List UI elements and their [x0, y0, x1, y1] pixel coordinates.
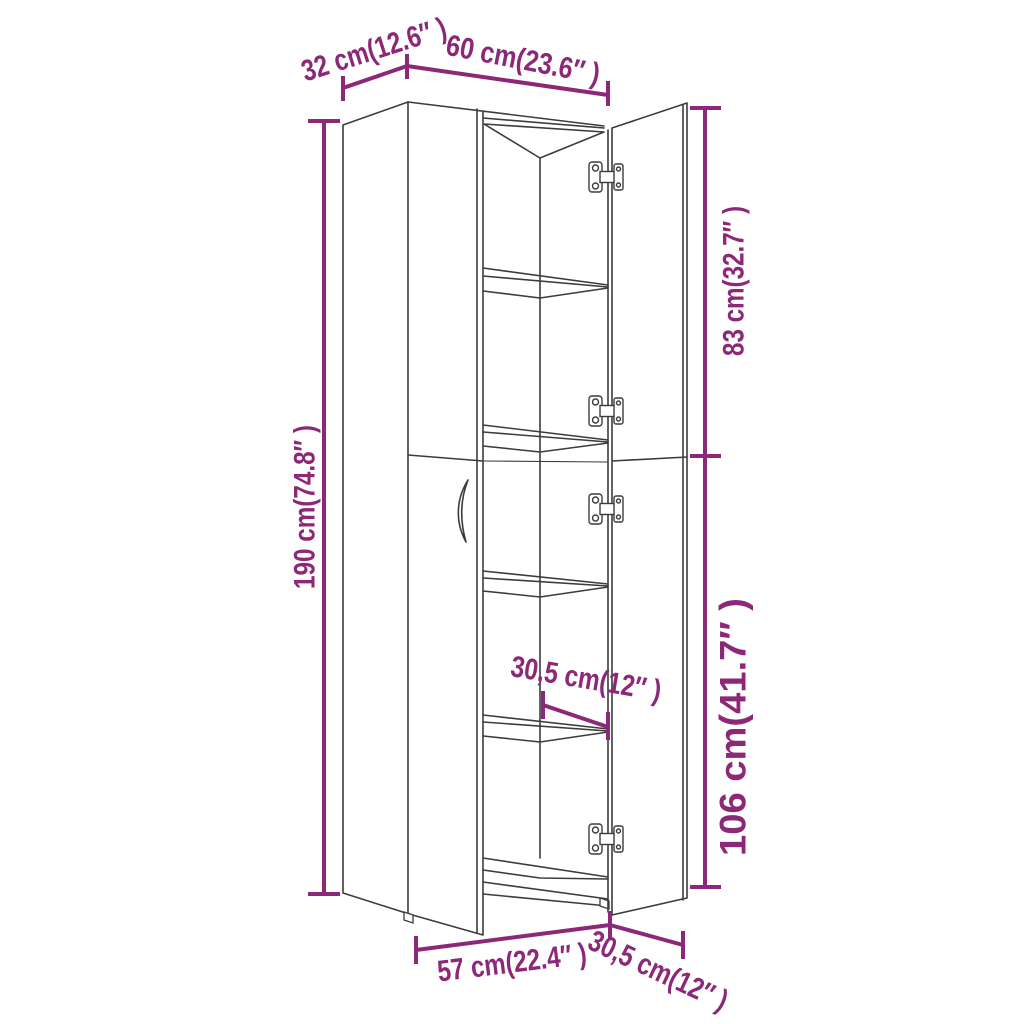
- cabinet-feet: [404, 898, 609, 923]
- cabinet-drawing: [343, 102, 687, 935]
- dim-left-height-label: 190 cm(74.8″ ): [289, 425, 322, 589]
- dim-right-lower-label: 106 cm(41.7″ ): [713, 598, 754, 856]
- hinge-icon-1: [589, 162, 623, 192]
- door-handle-icon: [458, 480, 468, 542]
- dim-right-upper-line: [690, 108, 721, 456]
- hinge-icon-2: [589, 396, 623, 426]
- interior-mid-seam: [483, 461, 608, 462]
- hinge-icon-3: [589, 494, 623, 524]
- shelf-2: [483, 425, 608, 452]
- shelf-3: [483, 571, 608, 597]
- diagram-canvas: 32 cm(12.6″ ) 60 cm(23.6″ ) 190 cm(74.8″…: [0, 0, 1024, 1024]
- cabinet-side-panel: [343, 102, 409, 914]
- furniture-dimension-diagram: 32 cm(12.6″ ) 60 cm(23.6″ ) 190 cm(74.8″…: [0, 0, 1024, 1024]
- hinge-icon-4: [589, 824, 623, 854]
- cabinet-floor: [483, 858, 608, 906]
- cabinet-top-front-edge: [408, 102, 604, 126]
- shelf-1: [483, 268, 608, 298]
- dim-shelf-depth-label: 30,5 cm(12″ ): [508, 650, 663, 708]
- dim-right-upper-label: 83 cm(32.7″ ): [718, 206, 751, 356]
- closed-left-doors: [408, 109, 483, 935]
